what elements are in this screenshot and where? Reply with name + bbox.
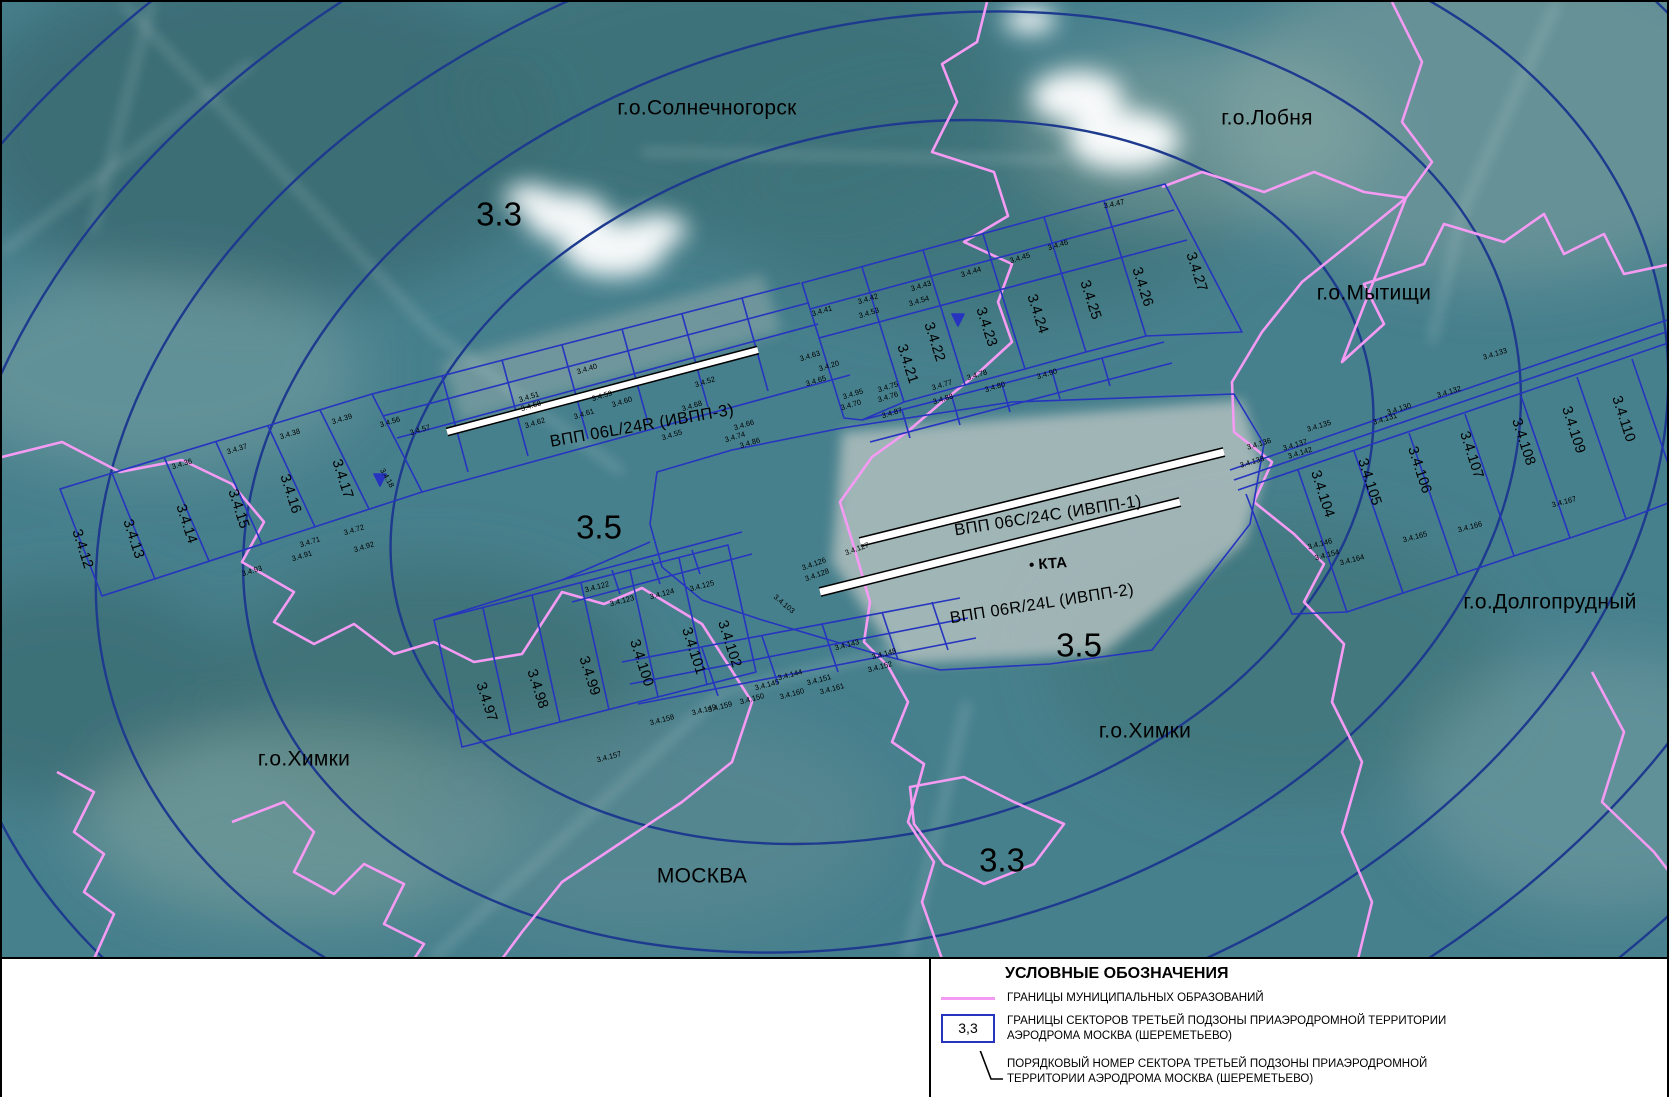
sectors-large-label: 3.4.108 [1509,417,1538,468]
sectors-small-label: 3.4.103 [772,593,796,615]
sectors-large-label: 3.4.97 [473,681,499,724]
sectors-small-label: 3.4.42 [857,292,879,305]
sectors-large-label: 3.4.99 [576,655,602,698]
sectors-large-label: 3.4.109 [1559,405,1588,456]
sectors-small-label: 3.4.57 [409,423,431,436]
sectors-small-label: 3.4.160 [779,687,805,701]
zone-numbers-label: 3.3 [476,198,522,231]
sectors-large-label: 3.4.15 [225,488,251,531]
sectors-small-label: 3.4.150 [739,692,765,706]
sectors-small-label: 3.4.72 [343,523,365,536]
sectors-large-label: 3.4.25 [1077,279,1103,322]
legend-panel: УСЛОВНЫЕ ОБОЗНАЧЕНИЯ ГРАНИЦЫ МУНИЦИПАЛЬН… [929,959,1669,1097]
bottom-panel: УСЛОВНЫЕ ОБОЗНАЧЕНИЯ ГРАНИЦЫ МУНИЦИПАЛЬН… [2,959,1669,1097]
municipalities-label: г.о.Мытищи [1317,283,1431,304]
sectors-large-label: 3.4.14 [173,503,199,546]
sectors-small-label: 3.4.38 [279,427,301,440]
sectors-small-label: 3.4.87 [881,406,903,419]
map-sheet: г.о.Солнечногорскг.о.Лобняг.о.Мытищиг.о.… [0,0,1669,1097]
sectors-small-label: 3.4.92 [353,540,375,553]
sectors-large-label: 3.4.101 [679,626,708,677]
sectors-small-label: 3.4.93 [241,564,263,577]
sectors-large-label: 3.4.16 [277,473,303,516]
sectors-small-label: 3.4.77 [931,378,953,391]
runway-labels-label: ВПП 06R/24L (ИВПП-2) [949,581,1135,626]
sectors-small-label: 3.4.165 [1402,530,1428,544]
sectors-large-label: 3.4.106 [1405,445,1434,496]
sectors-large-label: 3.4.102 [715,619,744,670]
sectors-large-label: 3.4.107 [1457,430,1486,481]
sectors-small-label: 3.4.131 [1372,412,1398,426]
sectors-small-label: 3.4.122 [584,580,610,594]
sectors-small-label: 3.4.136 [1246,437,1272,451]
sectors-small-label: 3.4.36 [171,457,193,470]
sectors-large-label: 3.4.23 [973,306,999,349]
municipalities-label: г.о.Лобня [1221,108,1313,129]
sectors-small-label: 3.4.66 [733,418,755,431]
sectors-small-label: 3.4.53 [858,306,880,319]
runway-labels-label: ВПП 06C/24C (ИВПП-1) [953,493,1143,539]
sectors-small-label: 3.4.125 [689,579,715,593]
sectors-large-label: 3.4.13 [120,518,146,561]
sectors-small-label: 3.4.62 [524,416,546,429]
sectors-small-label: 3.4.133 [1482,347,1508,361]
sectors-large-label: 3.4.98 [524,668,550,711]
pink-line-symbol [941,991,995,1000]
sectors-small-label: 3.4.143 [834,638,860,652]
sectors-small-label: 3.4.54 [908,294,930,307]
sectors-large-label: 3.4.22 [921,321,947,364]
sectors-small-label: 3.4.157 [596,750,622,764]
legend-item-sector-borders: 3,3 ГРАНИЦЫ СЕКТОРОВ ТРЕТЬЕЙ ПОДЗОНЫ ПРИ… [941,1014,1669,1045]
sectors-small-label: 3.4.152 [867,660,893,674]
sectors-small-label: 3.4.145 [754,678,780,692]
sectors-small-label: 3.4.71 [299,535,321,548]
map-canvas: г.о.Солнечногорскг.о.Лобняг.о.Мытищиг.о.… [2,2,1669,959]
sectors-small-label: 3.4.60 [611,395,633,408]
sectors-small-label: 3.4.123 [609,594,635,608]
sectors-small-label: 3.4.61 [573,407,595,420]
legend-item-label: ПОРЯДКОВЫЙ НОМЕР СЕКТОРА ТРЕТЬЕЙ ПОДЗОНЫ… [1007,1057,1487,1088]
sectors-small-label: 3.4.144 [777,668,803,682]
sectors-small-label: 3.4.46 [1047,238,1069,251]
municipalities-label: г.о.Химки [1099,721,1191,742]
sector-box-number: 3,3 [958,1020,977,1036]
sectors-large-label: 3.4.104 [1308,469,1337,520]
municipalities-label: г.о.Химки [258,749,350,770]
sectors-large-label: 3.4.110 [1609,394,1637,443]
sectors-small-label: 3.4.88 [932,392,954,405]
legend-item-label: ГРАНИЦЫ МУНИЦИПАЛЬНЫХ ОБРАЗОВАНИЙ [1007,991,1264,1007]
municipalities-label: МОСКВА [657,866,747,887]
sectors-small-label: 3.4.80 [984,380,1006,393]
sectors-large-label: 3.4.100 [627,638,656,689]
sectors-small-label: 3.4.65 [805,374,827,387]
sectors-large-label: 3.4.26 [1129,266,1155,309]
sectors-small-label: 3.4.39 [331,412,353,425]
sectors-small-label: 3.4.43 [910,279,932,292]
sectors-small-label: 3.4.166 [1457,520,1483,534]
sectors-small-label: 3.4.148 [871,647,897,661]
sectors-large-label: 3.4.27 [1183,251,1209,294]
sectors-small-label: 3.4.45 [1009,251,1031,264]
runway-labels-label: ВПП 06L/24R (ИВПП-3) [549,402,736,451]
sectors-small-label: 3.4.132 [1436,385,1462,399]
sectors-small-label: 3.4.167 [1551,495,1577,509]
sectors-small-label: 3.4.41 [811,304,833,317]
sectors-small-label: 3.4.63 [799,349,821,362]
sectors-small-label: 3.4.127 [844,541,870,557]
sectors-small-label: 3.4.56 [379,415,401,428]
sectors-large-label: 3.4.12 [69,528,95,571]
sectors-small-label: 3.4.20 [818,359,840,372]
municipalities-label: г.о.Долгопрудный [1463,592,1636,613]
sectors-small-label: 3.4.91 [291,549,313,562]
sectors-small-label: 3.4.138 [1239,455,1265,469]
zone-numbers-label: 3.5 [576,511,622,544]
map-labels: г.о.Солнечногорскг.о.Лобняг.о.Мытищиг.о.… [2,2,1669,957]
sectors-small-label: 3.4.135 [1306,419,1332,433]
poi-label: • КТА [1029,555,1068,573]
sectors-small-label: 3.4.154 [1314,548,1340,562]
zone-numbers-label: 3.5 [1056,629,1102,662]
legend-title: УСЛОВНЫЕ ОБОЗНАЧЕНИЯ [1005,965,1669,983]
legend-item-label: ГРАНИЦЫ СЕКТОРОВ ТРЕТЬЕЙ ПОДЗОНЫ ПРИАЭРО… [1007,1014,1487,1045]
sectors-small-label: 3.4.161 [819,682,845,696]
sectors-small-label: 3.4.164 [1339,553,1365,567]
sectors-large-label: 3.4.17 [329,458,355,501]
sectors-small-label: 3.4.18 [379,467,396,489]
sectors-small-label: 3.4.37 [226,442,248,455]
sectors-small-label: 3.4.44 [960,265,982,278]
municipalities-label: г.о.Солнечногорск [617,98,796,119]
sectors-large-label: 3.4.24 [1024,293,1050,336]
sectors-small-label: 3.4.47 [1103,198,1125,210]
sector-box-symbol: 3,3 [941,1014,995,1043]
sectors-large-label: 3.4.21 [894,343,920,386]
legend-item-municipal-borders: ГРАНИЦЫ МУНИЦИПАЛЬНЫХ ОБРАЗОВАНИЙ [941,991,1669,1007]
sectors-small-label: 3.4.124 [649,587,675,601]
zone-numbers-label: 3.3 [979,844,1025,877]
sectors-large-label: 3.4.105 [1355,457,1384,508]
sectors-small-label: 3.4.52 [694,375,716,388]
sectors-small-label: 3.4.158 [649,713,675,727]
legend-item-sector-number: ПОРЯДКОВЫЙ НОМЕР СЕКТОРА ТРЕТЬЕЙ ПОДЗОНЫ… [941,1057,1669,1088]
sectors-small-label: 3.4.90 [1036,367,1058,380]
sectors-small-label: 3.4.78 [966,368,988,381]
sectors-small-label: 3.4.40 [576,362,598,375]
